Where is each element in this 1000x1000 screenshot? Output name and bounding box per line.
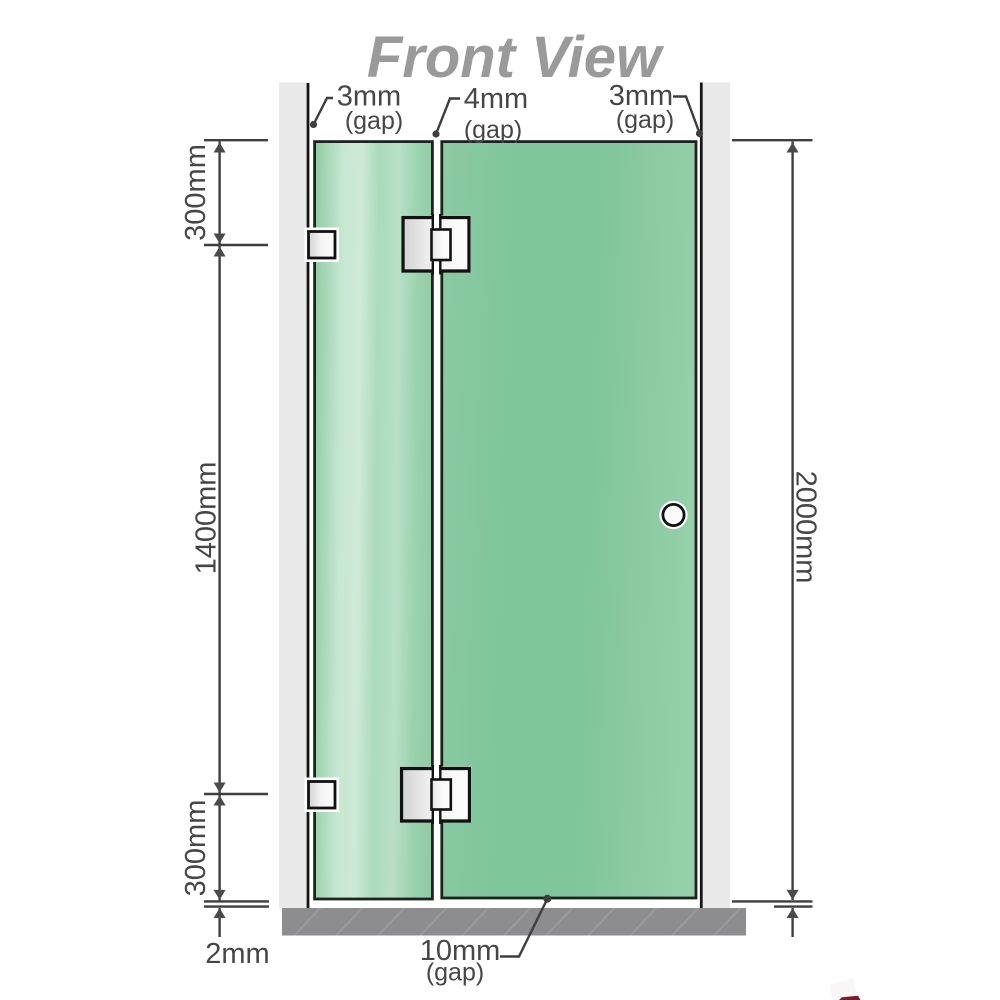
svg-text:300mm: 300mm — [180, 800, 212, 897]
svg-text:(gap): (gap) — [426, 959, 484, 987]
svg-text:300mm: 300mm — [180, 144, 212, 241]
svg-text:2000mm: 2000mm — [790, 471, 822, 584]
svg-text:(gap): (gap) — [616, 106, 674, 134]
svg-text:2mm: 2mm — [205, 938, 269, 970]
svg-text:1400mm: 1400mm — [191, 462, 223, 575]
svg-text:4mm: 4mm — [464, 83, 528, 115]
svg-text:(gap): (gap) — [345, 107, 403, 135]
svg-text:(gap): (gap) — [464, 116, 522, 144]
